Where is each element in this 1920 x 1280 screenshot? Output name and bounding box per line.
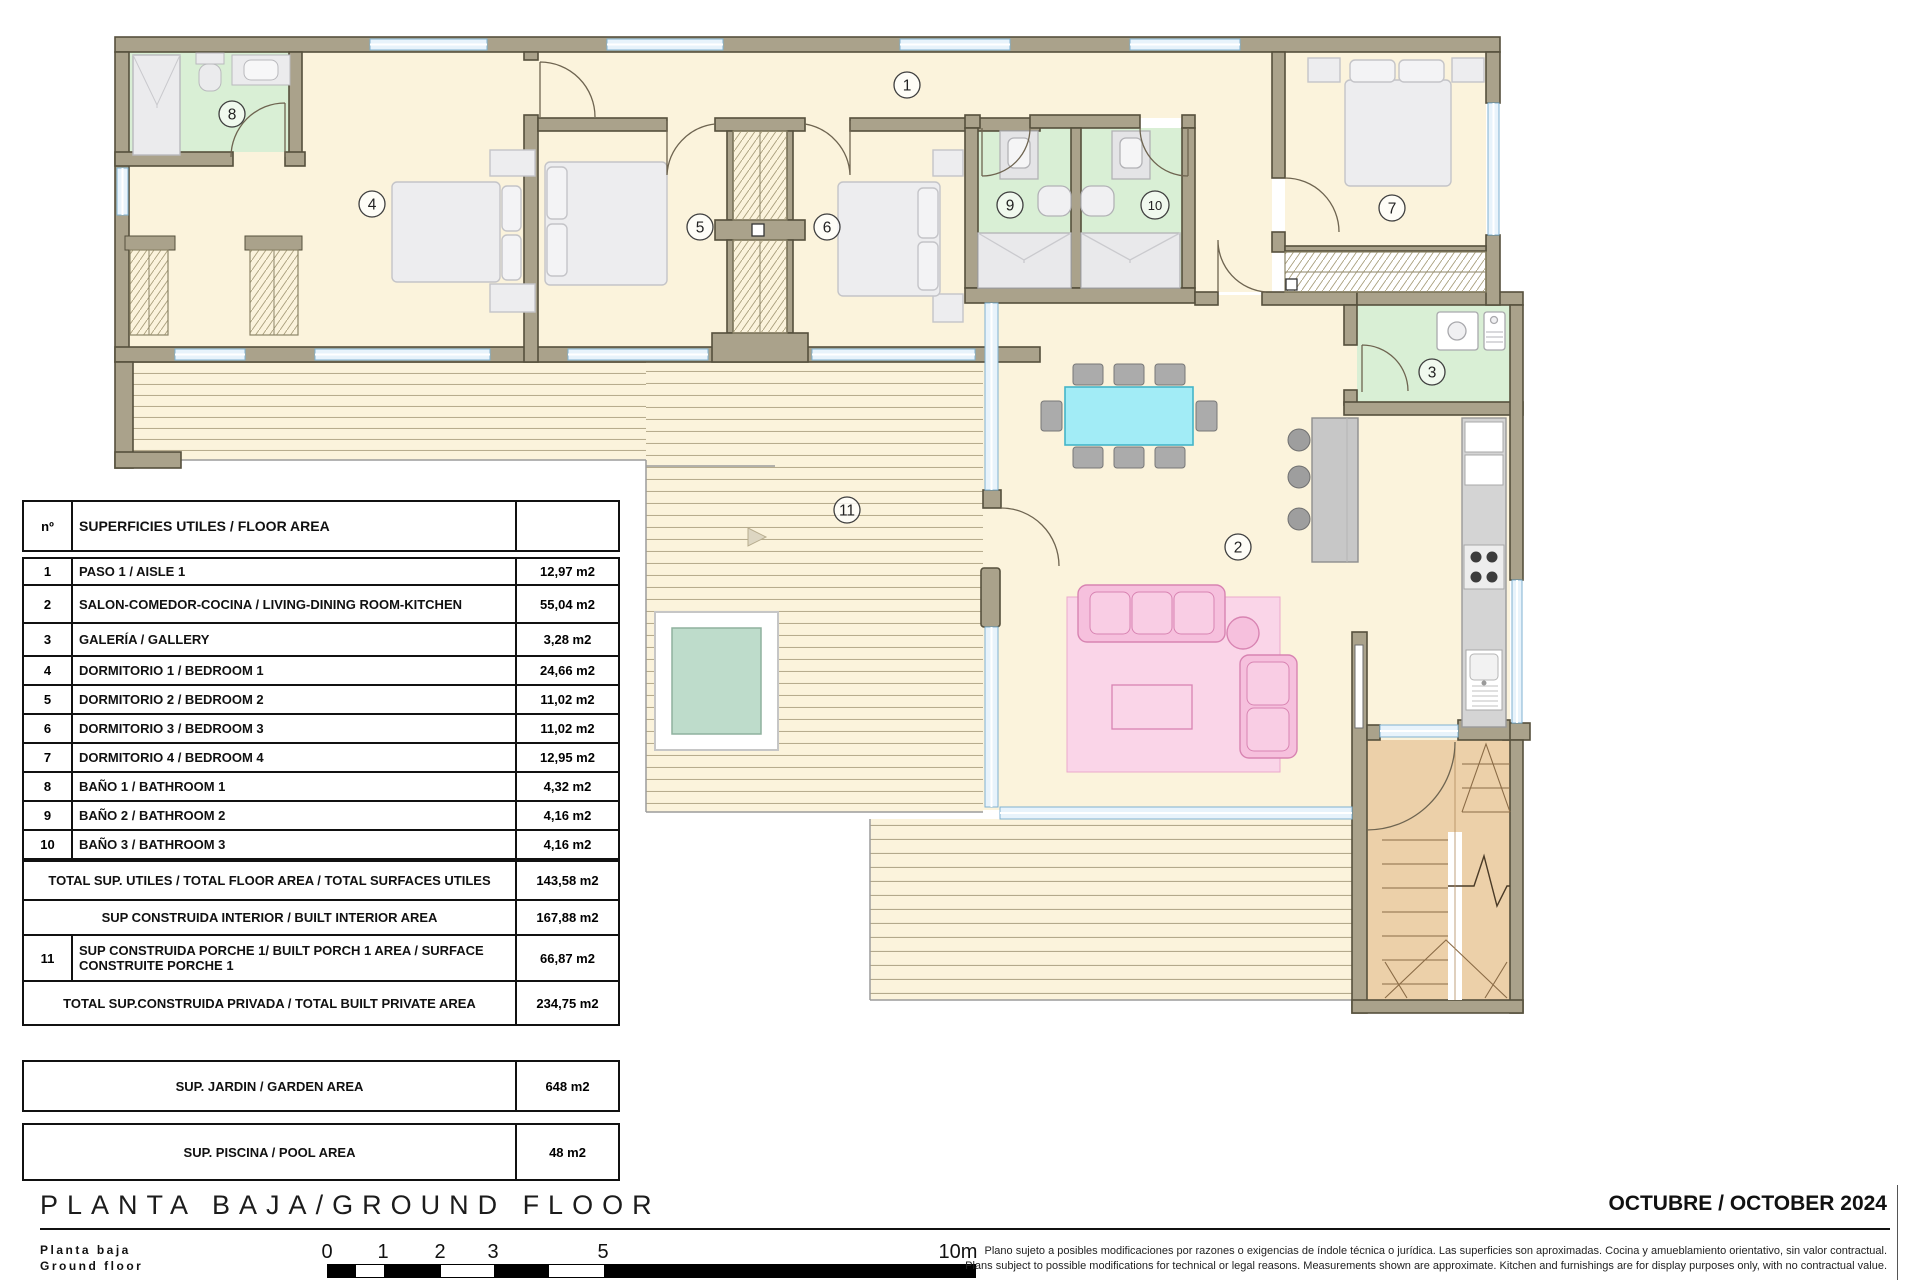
bar-stool bbox=[1288, 508, 1310, 530]
svg-text:1: 1 bbox=[903, 78, 912, 95]
stair-wall-window-slit bbox=[1355, 645, 1363, 728]
svg-text:10: 10 bbox=[1148, 198, 1162, 213]
kitchen-island bbox=[1312, 418, 1358, 562]
room-number-8: 8 bbox=[219, 101, 245, 127]
svg-text:4: 4 bbox=[368, 197, 377, 214]
area-table-totals: TOTAL SUP. UTILES / TOTAL FLOOR AREA / T… bbox=[22, 860, 620, 1026]
dining-chair bbox=[1114, 447, 1144, 468]
room-number-11: 11 bbox=[834, 497, 860, 523]
floor-plan-sheet: 1 2 3 4 5 6 7 8 9 10 11 nº SUPERFICIES U… bbox=[0, 0, 1920, 1280]
disclaimer-en: Plans subject to possible modifications … bbox=[965, 1259, 1887, 1274]
svg-text:3: 3 bbox=[1428, 365, 1437, 382]
room-number-7: 7 bbox=[1379, 195, 1405, 221]
dining-chair bbox=[1196, 401, 1217, 431]
header-label-col: SUPERFICIES UTILES / FLOOR AREA bbox=[73, 517, 515, 536]
dining-chair bbox=[1073, 447, 1103, 468]
pool bbox=[655, 612, 778, 750]
table-row: 2 SALON-COMEDOR-COCINA / LIVING-DINING R… bbox=[24, 584, 618, 622]
coffee-table bbox=[1112, 685, 1192, 729]
svg-text:5: 5 bbox=[696, 220, 705, 237]
room-number-9: 9 bbox=[997, 192, 1023, 218]
table-row: 8 BAÑO 1 / BATHROOM 1 4,32 m2 bbox=[24, 771, 618, 800]
right-border-line bbox=[1897, 1185, 1898, 1280]
stairs-floor bbox=[1367, 740, 1510, 1000]
dining-chair bbox=[1155, 447, 1185, 468]
table-row: 7 DORMITORIO 4 / BEDROOM 4 12,95 m2 bbox=[24, 742, 618, 771]
area-table-header: nº SUPERFICIES UTILES / FLOOR AREA bbox=[22, 500, 620, 552]
table-row: 10 BAÑO 3 / BATHROOM 3 4,16 m2 bbox=[24, 829, 618, 858]
dining-chair bbox=[1073, 364, 1103, 385]
dining-table bbox=[1065, 387, 1193, 445]
floor-subtitle: Planta baja Ground floor bbox=[40, 1242, 143, 1274]
bar-stool bbox=[1288, 429, 1310, 451]
svg-text:9: 9 bbox=[1006, 198, 1015, 215]
page-title: PLANTA BAJA/GROUND FLOOR bbox=[40, 1190, 661, 1221]
scale-label-5: 5 bbox=[597, 1241, 608, 1264]
table-row: 9 BAÑO 2 / BATHROOM 2 4,16 m2 bbox=[24, 800, 618, 829]
room-number-5: 5 bbox=[687, 214, 713, 240]
scale-label-2: 2 bbox=[434, 1241, 445, 1264]
garden-area-row: SUP. JARDIN / GARDEN AREA 648 m2 bbox=[22, 1060, 620, 1112]
title-rule bbox=[40, 1228, 1890, 1230]
total-row: TOTAL SUP.CONSTRUIDA PRIVADA / TOTAL BUI… bbox=[24, 980, 618, 1024]
svg-text:8: 8 bbox=[228, 107, 237, 124]
room-number-1: 1 bbox=[894, 72, 920, 98]
dining-chair bbox=[1041, 401, 1062, 431]
pouf bbox=[1227, 617, 1259, 649]
area-table-rows: 1 PASO 1 / AISLE 1 12,97 m2 2 SALON-COME… bbox=[22, 557, 620, 860]
table-row: 3 GALERÍA / GALLERY 3,28 m2 bbox=[24, 622, 618, 655]
plan-date: OCTUBRE / OCTOBER 2024 bbox=[1608, 1192, 1887, 1216]
dining-chair bbox=[1114, 364, 1144, 385]
room-number-3: 3 bbox=[1419, 359, 1445, 385]
pool-area-row: SUP. PISCINA / POOL AREA 48 m2 bbox=[22, 1123, 620, 1181]
svg-text:7: 7 bbox=[1388, 201, 1397, 218]
table-row: 4 DORMITORIO 1 / BEDROOM 1 24,66 m2 bbox=[24, 655, 618, 684]
disclaimer-es: Plano sujeto a posibles modificaciones p… bbox=[965, 1244, 1887, 1259]
scale-label-0: 0 bbox=[321, 1241, 332, 1264]
total-row: TOTAL SUP. UTILES / TOTAL FLOOR AREA / T… bbox=[24, 862, 618, 899]
bar-stool bbox=[1288, 466, 1310, 488]
table-row: 5 DORMITORIO 2 / BEDROOM 2 11,02 m2 bbox=[24, 684, 618, 713]
table-row: 1 PASO 1 / AISLE 1 12,97 m2 bbox=[24, 559, 618, 584]
scale-bar bbox=[327, 1264, 976, 1278]
svg-text:6: 6 bbox=[823, 220, 832, 237]
room-number-10: 10 bbox=[1141, 191, 1169, 219]
room-number-2: 2 bbox=[1225, 534, 1251, 560]
svg-text:11: 11 bbox=[839, 503, 855, 520]
total-row: SUP CONSTRUIDA INTERIOR / BUILT INTERIOR… bbox=[24, 899, 618, 934]
dining-chair bbox=[1155, 364, 1185, 385]
table-row: 6 DORMITORIO 3 / BEDROOM 3 11,02 m2 bbox=[24, 713, 618, 742]
total-row: 11 SUP CONSTRUIDA PORCHE 1/ BUILT PORCH … bbox=[24, 934, 618, 980]
living-room-set bbox=[1067, 585, 1297, 772]
disclaimer: Plano sujeto a posibles modificaciones p… bbox=[965, 1244, 1887, 1274]
scale-label-1: 1 bbox=[377, 1241, 388, 1264]
bedroom2-bed bbox=[545, 162, 667, 285]
svg-text:2: 2 bbox=[1234, 540, 1243, 557]
room-number-6: 6 bbox=[814, 214, 840, 240]
header-value-col bbox=[515, 502, 618, 550]
header-num-col: nº bbox=[24, 502, 73, 550]
scale-label-3: 3 bbox=[487, 1241, 498, 1264]
cooktop bbox=[1464, 545, 1504, 589]
room-number-4: 4 bbox=[359, 191, 385, 217]
gallery-appliances bbox=[1437, 312, 1505, 350]
